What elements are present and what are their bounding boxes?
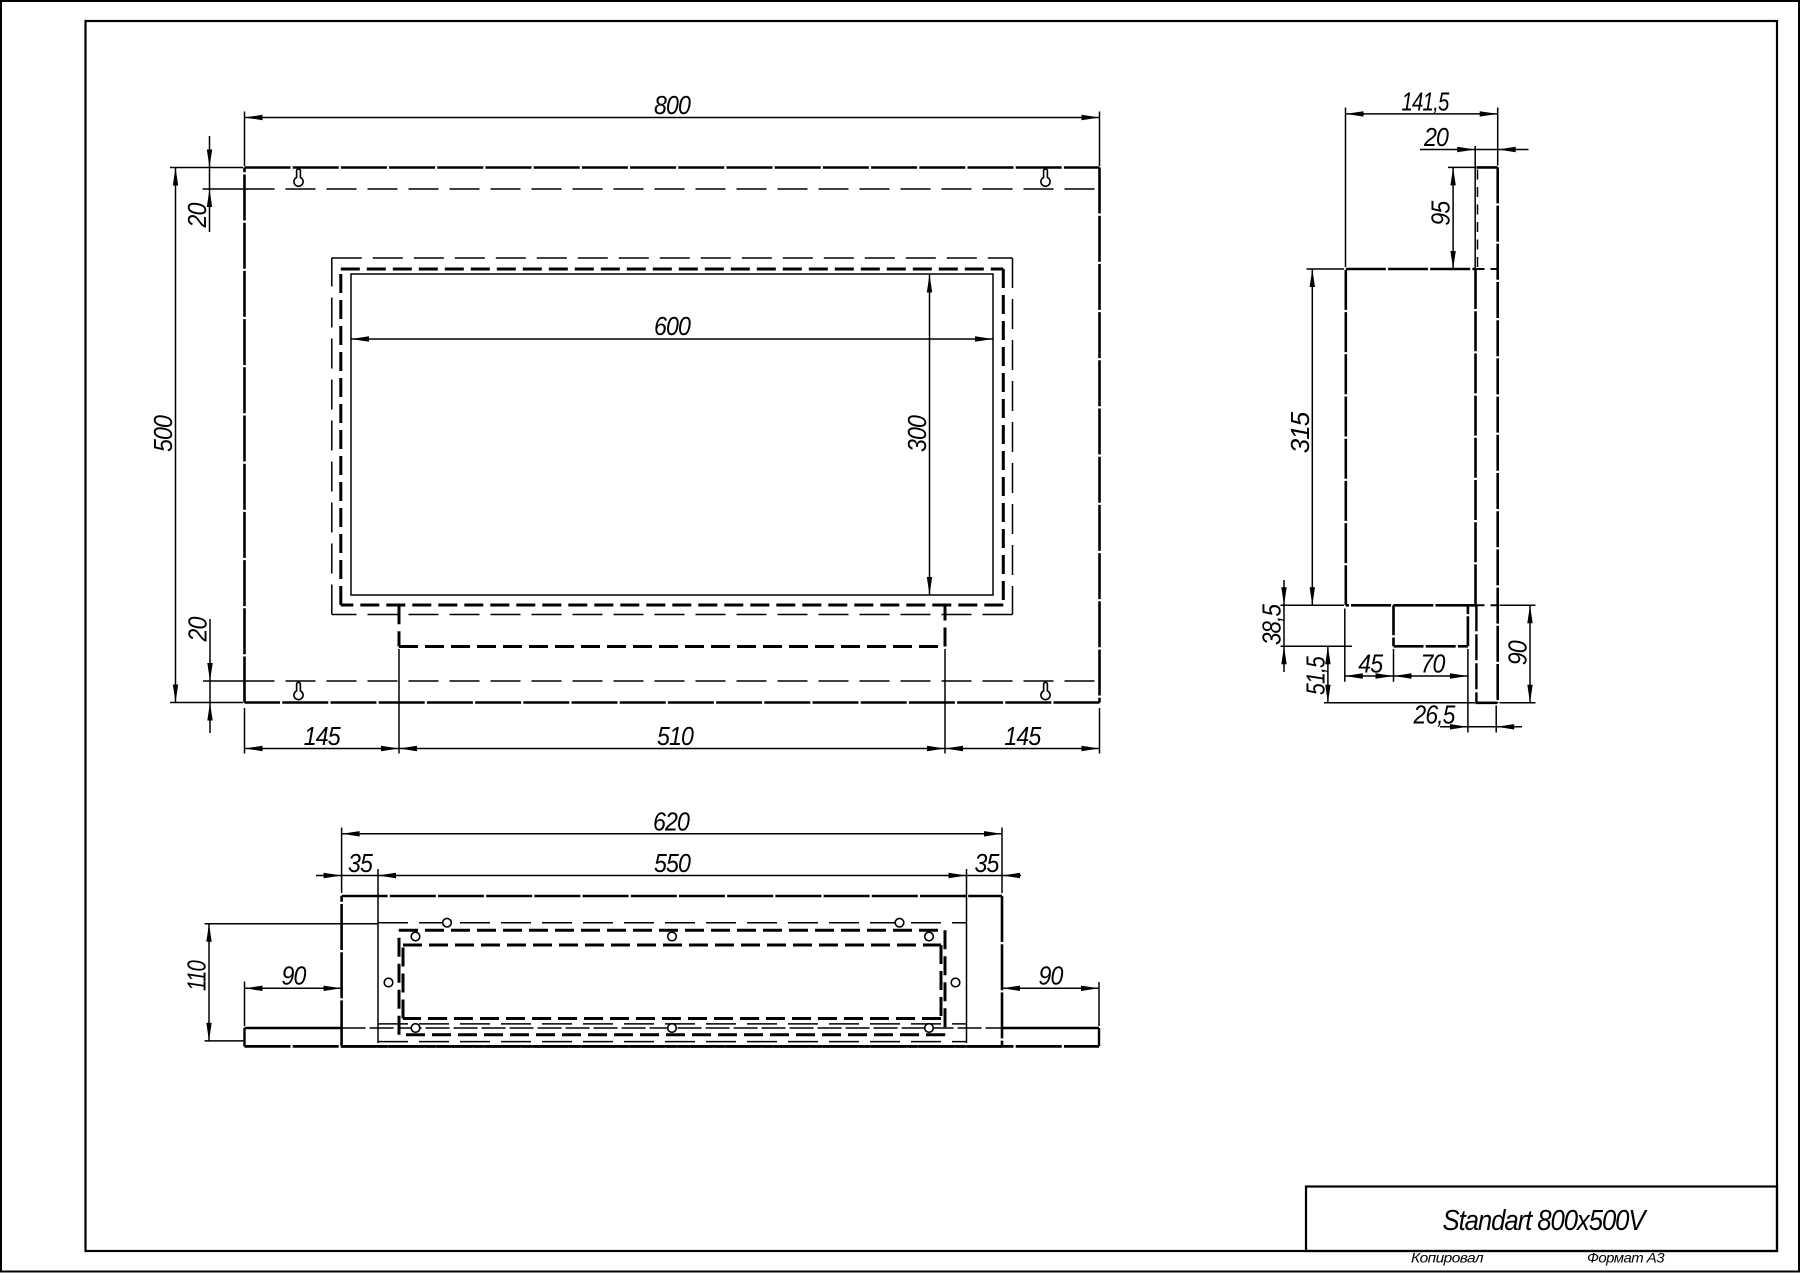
svg-text:35: 35 xyxy=(348,848,373,878)
svg-text:110: 110 xyxy=(182,960,212,991)
svg-text:600: 600 xyxy=(654,311,691,341)
svg-text:300: 300 xyxy=(902,415,932,452)
svg-text:38,5: 38,5 xyxy=(1257,604,1287,645)
svg-text:70: 70 xyxy=(1421,649,1446,679)
svg-text:315: 315 xyxy=(1285,411,1315,453)
svg-text:Формат А3: Формат А3 xyxy=(1587,1250,1665,1266)
svg-text:500: 500 xyxy=(148,415,178,452)
svg-text:20: 20 xyxy=(1423,122,1449,152)
svg-text:145: 145 xyxy=(304,721,341,751)
svg-text:90: 90 xyxy=(1503,640,1533,665)
svg-text:800: 800 xyxy=(654,90,691,120)
svg-text:90: 90 xyxy=(282,961,307,991)
svg-text:26,5: 26,5 xyxy=(1413,699,1456,729)
svg-text:550: 550 xyxy=(654,848,691,878)
svg-text:90: 90 xyxy=(1039,961,1064,991)
svg-text:45: 45 xyxy=(1358,649,1383,679)
svg-text:Standart 800x500V: Standart 800x500V xyxy=(1443,1205,1648,1237)
svg-text:141,5: 141,5 xyxy=(1402,86,1450,116)
svg-text:145: 145 xyxy=(1004,721,1041,751)
svg-text:95: 95 xyxy=(1426,200,1456,225)
svg-text:35: 35 xyxy=(975,848,1000,878)
svg-text:620: 620 xyxy=(653,806,690,836)
svg-text:Копировал: Копировал xyxy=(1411,1250,1484,1266)
svg-text:510: 510 xyxy=(657,721,694,751)
svg-text:20: 20 xyxy=(183,616,213,642)
svg-text:20: 20 xyxy=(182,202,212,228)
svg-text:51,5: 51,5 xyxy=(1300,656,1330,695)
